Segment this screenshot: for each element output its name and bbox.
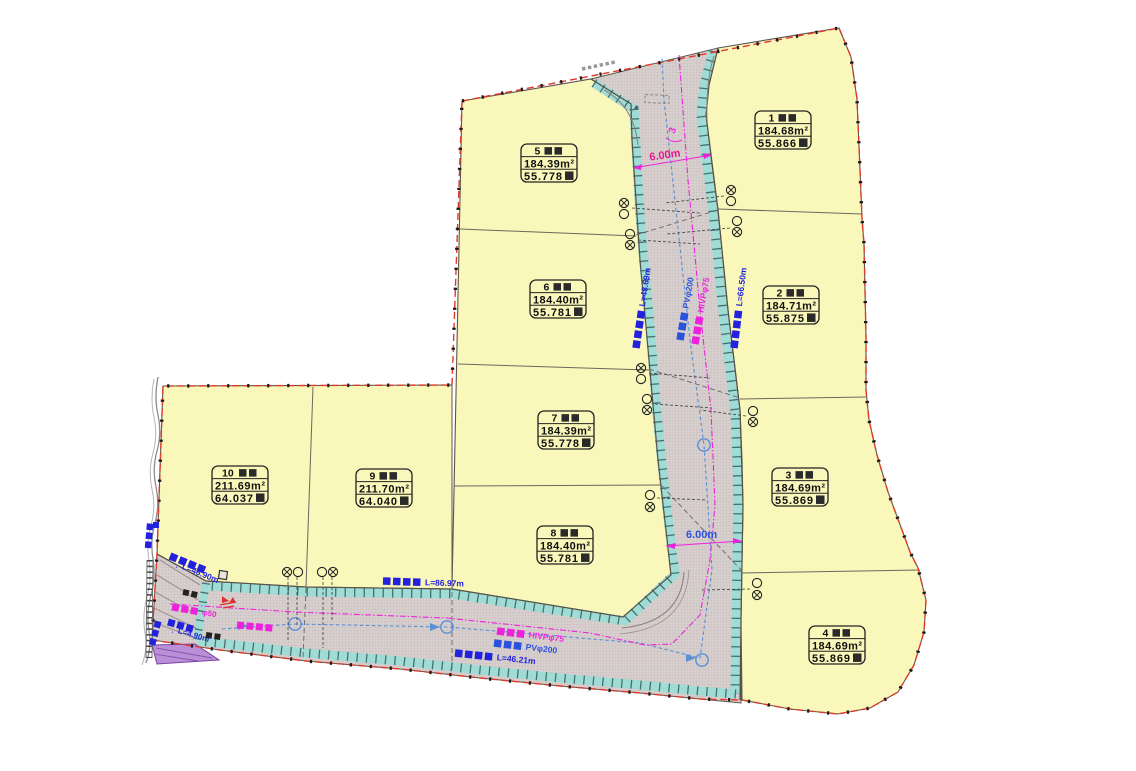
svg-text:184.39m²: 184.39m²: [541, 425, 591, 437]
svg-text:184.40m²: 184.40m²: [540, 540, 590, 552]
svg-text:211.70m²: 211.70m²: [359, 483, 409, 495]
svg-text:2: 2: [777, 288, 783, 300]
svg-text:184.40m²: 184.40m²: [533, 294, 583, 306]
svg-text:L=86.97m: L=86.97m: [425, 577, 465, 588]
svg-text:1: 1: [769, 113, 775, 125]
svg-text:55.778: 55.778: [541, 438, 579, 450]
svg-text:184.69m²: 184.69m²: [812, 640, 862, 652]
svg-text:8: 8: [551, 528, 557, 540]
svg-text:184.69m²: 184.69m²: [775, 482, 825, 494]
svg-text:184.71m²: 184.71m²: [766, 300, 816, 312]
svg-text:55.869: 55.869: [775, 495, 813, 507]
svg-text:9: 9: [370, 471, 376, 483]
svg-text:6: 6: [544, 282, 550, 294]
svg-text:55.869: 55.869: [812, 653, 850, 665]
svg-text:55.778: 55.778: [524, 171, 562, 183]
svg-text:10: 10: [222, 468, 234, 480]
svg-text:5: 5: [535, 146, 541, 158]
svg-text:184.68m²: 184.68m²: [758, 125, 808, 137]
svg-text:3: 3: [786, 470, 792, 482]
svg-text:55.866: 55.866: [758, 138, 796, 150]
svg-text:55.781: 55.781: [533, 307, 571, 319]
svg-text:55.875: 55.875: [766, 313, 804, 325]
svg-text:55.781: 55.781: [540, 553, 578, 565]
svg-text:7: 7: [552, 413, 558, 425]
svg-text:4: 4: [823, 628, 829, 640]
svg-text:64.037: 64.037: [215, 493, 253, 505]
svg-text:6.00m: 6.00m: [686, 529, 717, 541]
svg-text:64.040: 64.040: [359, 496, 397, 508]
svg-text:184.39m²: 184.39m²: [524, 158, 574, 170]
svg-text:211.69m²: 211.69m²: [215, 480, 265, 492]
